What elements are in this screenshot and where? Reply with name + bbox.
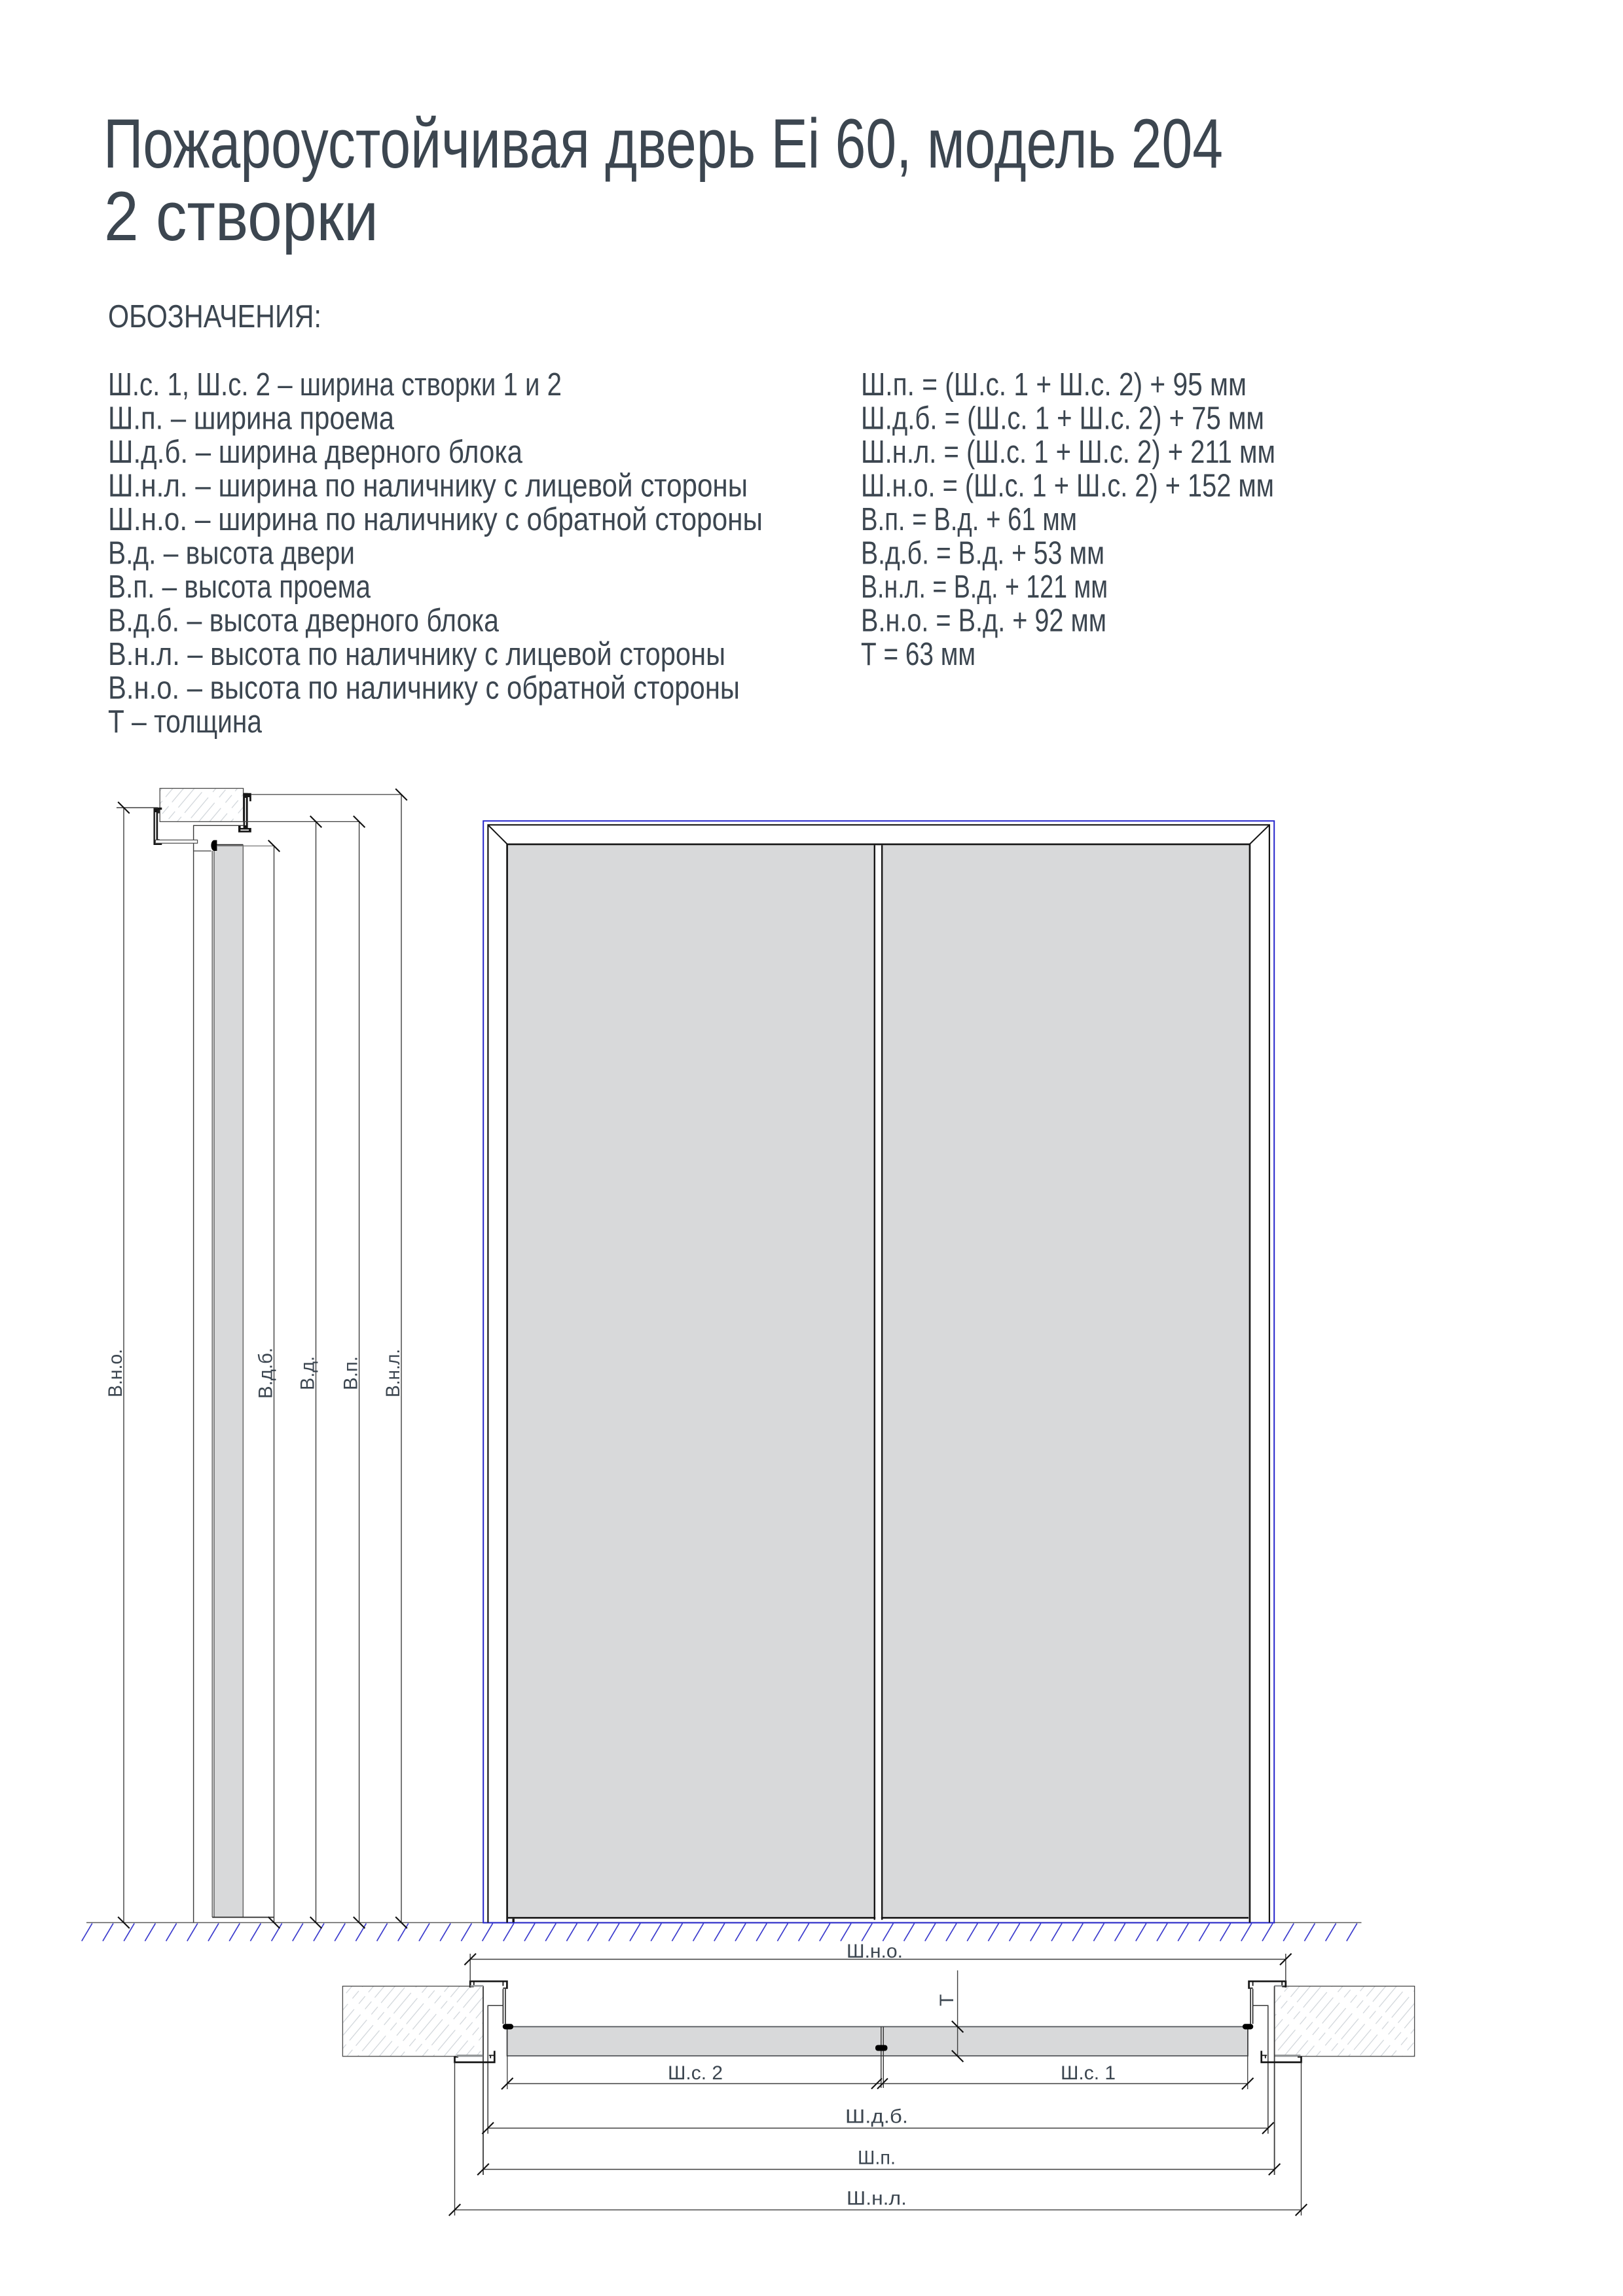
svg-text:В.п. = В.д. + 61 мм: В.п. = В.д. + 61 мм [861,502,1077,537]
svg-text:Ш.н.о. – ширина по наличнику с: Ш.н.о. – ширина по наличнику с обратной … [108,502,763,537]
svg-text:Ш.д.б. = (Ш.с. 1 + Ш.с. 2) + 7: Ш.д.б. = (Ш.с. 1 + Ш.с. 2) + 75 мм [861,401,1264,437]
svg-text:В.д.: В.д. [297,1356,319,1390]
svg-text:В.н.о. – высота по наличнику с: В.н.о. – высота по наличнику с обратной … [108,671,740,706]
svg-text:Т: Т [936,1994,958,2006]
svg-text:Пожароустойчивая дверь Ei 60,: Пожароустойчивая дверь Ei 60, модель 204 [103,104,1223,183]
svg-text:Ш.н.о.: Ш.н.о. [847,1941,903,1962]
svg-text:В.д.б.: В.д.б. [255,1348,277,1399]
svg-text:В.н.л. = В.д. + 121 мм: В.н.л. = В.д. + 121 мм [861,569,1108,605]
svg-text:В.н.о.: В.н.о. [105,1349,126,1397]
svg-text:Ш.п. = (Ш.с. 1 + Ш.с. 2) + 95: Ш.п. = (Ш.с. 1 + Ш.с. 2) + 95 мм [861,367,1247,403]
svg-text:В.д. – высота двери: В.д. – высота двери [108,536,355,571]
svg-text:Ш.с. 2: Ш.с. 2 [668,2062,723,2084]
svg-text:В.н.л. – высота по наличнику с: В.н.л. – высота по наличнику с лицевой с… [108,637,725,672]
svg-text:Ш.н.л. = (Ш.с. 1 + Ш.с. 2) +: Ш.н.л. = (Ш.с. 1 + Ш.с. 2) + 211 мм [861,435,1275,470]
svg-text:Т – толщина: Т – толщина [108,704,263,740]
svg-text:В.д.б. = В.д. + 53 мм: В.д.б. = В.д. + 53 мм [861,536,1104,571]
svg-text:ОБОЗНАЧЕНИЯ:: ОБОЗНАЧЕНИЯ: [108,299,321,334]
svg-text:Ш.д.б. – ширина дверного блока: Ш.д.б. – ширина дверного блока [108,435,523,470]
svg-text:В.н.л.: В.н.л. [382,1349,404,1397]
svg-text:Ш.н.о. = (Ш.с. 1 + Ш.с. 2) + 1: Ш.н.о. = (Ш.с. 1 + Ш.с. 2) + 152 мм [861,469,1274,504]
svg-text:Ш.н.л.: Ш.н.л. [847,2187,907,2209]
svg-text:Ш.с. 1: Ш.с. 1 [1061,2062,1116,2084]
svg-text:В.п. – высота проема: В.п. – высота проема [108,569,371,605]
svg-text:Ш.с. 1, Ш.с. 2 – ширина створк: Ш.с. 1, Ш.с. 2 – ширина створки 1 и 2 [108,367,562,403]
svg-text:Ш.п.: Ш.п. [858,2147,896,2169]
svg-text:Ш.д.б.: Ш.д.б. [845,2106,908,2128]
svg-text:В.п.: В.п. [340,1356,362,1390]
svg-text:2 створки: 2 створки [104,177,378,255]
svg-text:Т = 63 мм: Т = 63 мм [861,637,976,672]
svg-text:Ш.н.л. – ширина по наличнику с: Ш.н.л. – ширина по наличнику с лицевой с… [108,469,748,504]
svg-text:В.д.б. – высота дверного блока: В.д.б. – высота дверного блока [108,603,500,639]
svg-text:В.н.о. = В.д. + 92 мм: В.н.о. = В.д. + 92 мм [861,603,1106,639]
svg-text:Ш.п. – ширина проема: Ш.п. – ширина проема [108,401,395,437]
